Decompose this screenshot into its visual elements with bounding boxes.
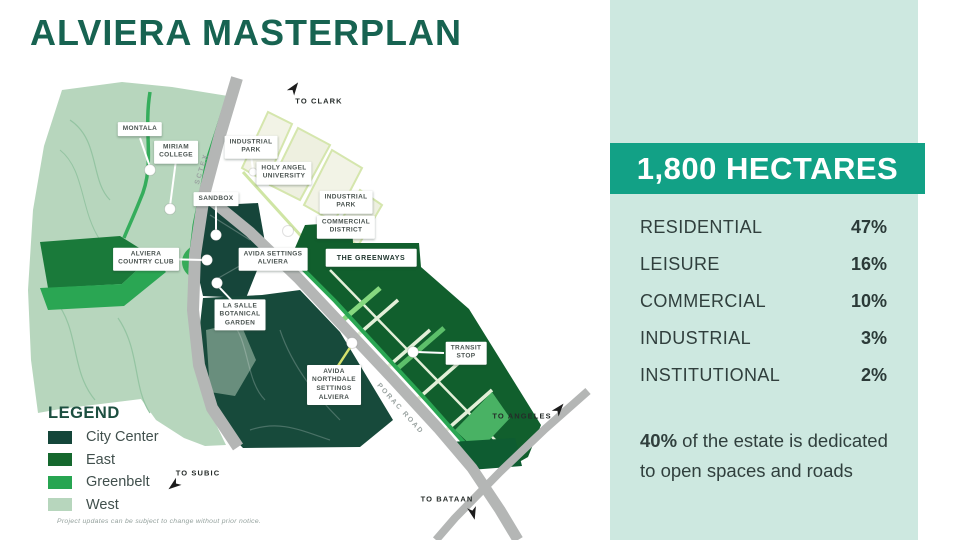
map-label-the-greenways: THE GREENWAYS [326, 249, 417, 267]
legend-title: LEGEND [48, 404, 159, 423]
map-label-montala: MONTALA [118, 122, 162, 136]
direction-label-to-bataan: TO BATAAN [421, 495, 474, 504]
map-label-sandbox: SANDBOX [194, 192, 239, 206]
west-swatch [48, 498, 72, 511]
east-swatch [48, 453, 72, 466]
map-label-miriam-college: MIRIAMCOLLEGE [154, 141, 198, 164]
map-label-alviera-country-club: ALVIERACOUNTRY CLUB [113, 248, 179, 271]
greenbelt-swatch [48, 476, 72, 489]
hectares-headline: 1,800 HECTARES [637, 151, 898, 187]
map-label-industrial-park-east: INDUSTRIALPARK [320, 191, 373, 214]
alviera-masterplan-slide: { "title": "ALVIERA MASTERPLAN", "panel"… [0, 0, 960, 540]
open-space-note: 40% of the estate is dedicated to open s… [640, 426, 905, 486]
city-center-swatch [48, 431, 72, 444]
legend-item-greenbelt: Greenbelt [48, 474, 159, 490]
map-label-transit-stop: TRANSITSTOP [446, 342, 487, 365]
stat-row-institutional: INSTITUTIONAL 2% [640, 357, 887, 394]
disclaimer-text: Project updates can be subject to change… [57, 518, 261, 525]
map-label-commercial-district: COMMERCIALDISTRICT [317, 216, 375, 239]
map-label-la-salle-botanical-garden: LA SALLEBOTANICALGARDEN [215, 299, 266, 330]
land-use-stats: RESIDENTIAL 47% LEISURE 16% COMMERCIAL 1… [640, 209, 887, 394]
hectares-banner: 1,800 HECTARES [610, 143, 925, 194]
legend-item-west: West [48, 497, 159, 513]
stat-row-residential: RESIDENTIAL 47% [640, 209, 887, 246]
map-label-avida-northdale-settings-alviera: AVIDANORTHDALESETTINGSALVIERA [307, 365, 361, 405]
direction-label-to-clark: TO CLARK [295, 97, 342, 106]
to-subic-arrow-icon [166, 478, 182, 493]
direction-label-to-angeles: TO ANGELES [492, 412, 551, 421]
page-title: ALVIERA MASTERPLAN [30, 12, 462, 54]
legend-item-east: East [48, 452, 159, 468]
map-label-industrial-park-north: INDUSTRIALPARK [225, 136, 278, 159]
legend: LEGEND City Center East Greenbelt West [48, 404, 159, 519]
direction-label-to-subic: TO SUBIC [176, 469, 221, 478]
map-label-avida-settings-alviera: AVIDA SETTINGSALVIERA [239, 248, 308, 271]
stat-row-industrial: INDUSTRIAL 3% [640, 320, 887, 357]
legend-item-city-center: City Center [48, 429, 159, 445]
to-clark-arrow-icon [287, 80, 302, 96]
stat-row-commercial: COMMERCIAL 10% [640, 283, 887, 320]
stat-row-leisure: LEISURE 16% [640, 246, 887, 283]
map-label-holy-angel-university: HOLY ANGELUNIVERSITY [256, 162, 311, 185]
